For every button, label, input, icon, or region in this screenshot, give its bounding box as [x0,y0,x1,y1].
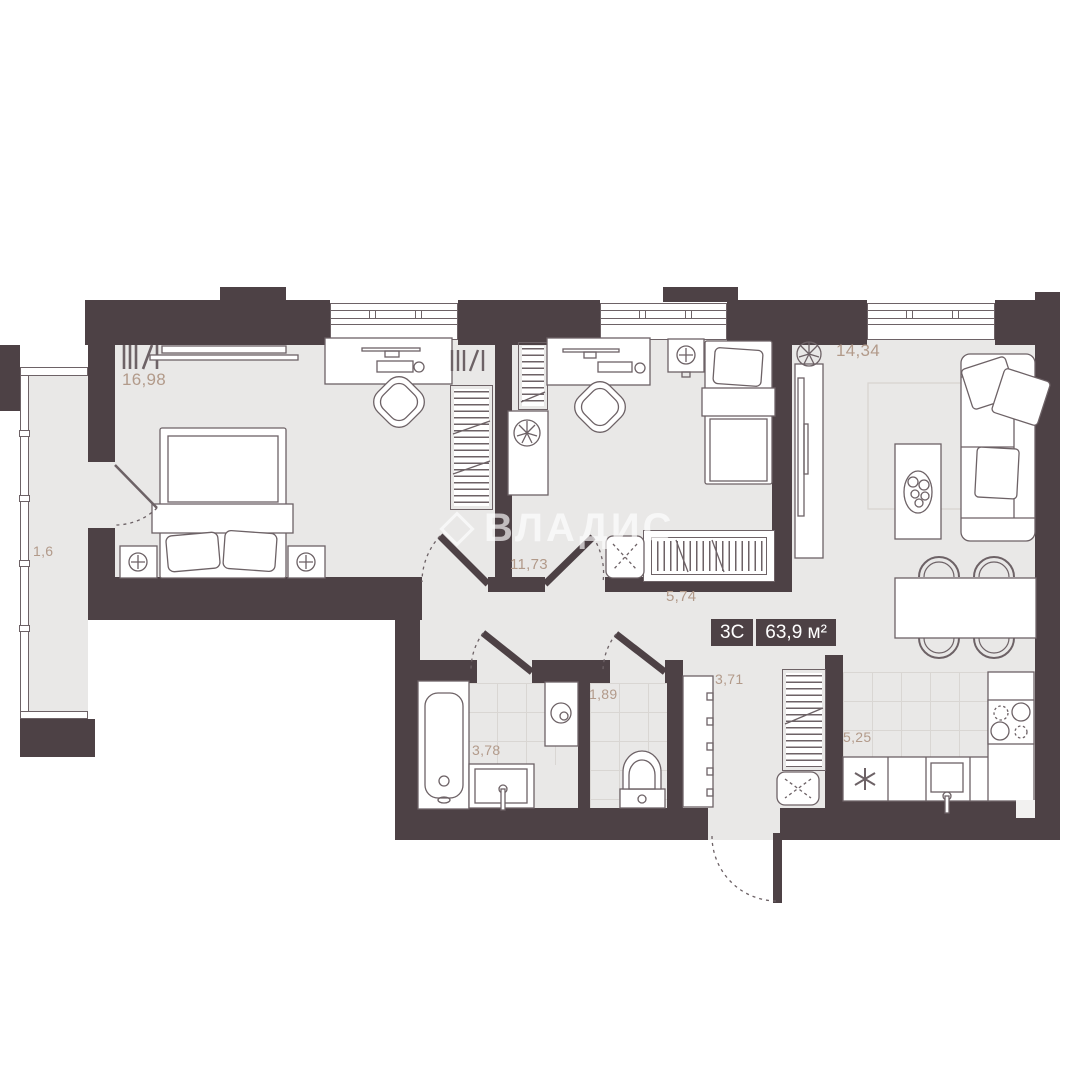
wardrobe-slash [453,421,490,474]
dining-table-icon [895,578,1036,638]
wc-door-arc [603,634,616,670]
room-area-label: 14,34 [836,341,880,361]
wardrobe-slash [785,708,823,724]
balcony-door-arc [115,508,157,525]
stool-icon [606,536,644,578]
tv-stand-icon [795,364,823,558]
sofa-icon [961,354,1051,541]
tv-icon [798,378,804,516]
double-bed-icon [152,428,293,578]
balcony-door-leaf [115,465,157,508]
desk-icon [325,338,452,384]
bathroom-door-leaf [483,633,532,672]
hall-cabinet-icon [683,676,713,807]
kidsroom-furniture [508,338,775,578]
nightstand-icon [120,546,157,578]
floor-plan: 16,98 1,6 11,73 5,74 14,34 3,78 1,89 3,7… [0,0,1080,1080]
apartment-area-label: 63,9 м² [756,619,836,646]
single-bed-icon [702,341,775,484]
desk-icon [547,338,650,385]
living-furniture [795,342,1051,658]
furniture-layer [0,0,1080,1080]
room-area-label: 11,73 [510,556,548,573]
toilet-icon [620,751,665,808]
bathroom-door-arc [471,633,483,671]
shelf-icon [162,346,286,353]
coffee-table-icon [895,444,941,539]
wc-door-leaf [616,634,665,672]
bedroom-door-arc [422,536,440,582]
plant-icon [797,342,821,366]
entry-door-arc [712,836,777,901]
room-area-label: 3,78 [472,742,500,758]
room-area-label: 1,6 [33,543,53,559]
apartment-type-label: 3С [711,619,753,646]
plant-cabinet-icon [508,411,548,495]
stove-icon [988,700,1034,744]
nightstand-icon [668,339,704,377]
kitchen-furniture [843,672,1035,818]
room-area-label: 5,74 [666,588,696,605]
stool-icon [777,772,819,805]
bedroom-door-leaf [440,536,488,584]
counter-notch [1016,800,1035,818]
room-area-label: 1,89 [589,686,617,702]
nightstand-icon [288,546,325,578]
room-area-label: 3,71 [715,671,743,687]
kidsroom-door-leaf [545,537,593,584]
room-area-label: 16,98 [122,370,166,390]
sink-vanity-icon [469,764,534,810]
hallway-furniture [683,676,823,807]
bathtub-icon [418,681,469,809]
apartment-badge: 3С 63,9 м² [711,619,836,646]
books-icon [452,350,483,371]
kidsroom-door-arc [593,537,604,582]
room-area-label: 5,25 [843,729,871,745]
shelf-icon [150,355,298,360]
washing-machine-icon [545,682,578,746]
